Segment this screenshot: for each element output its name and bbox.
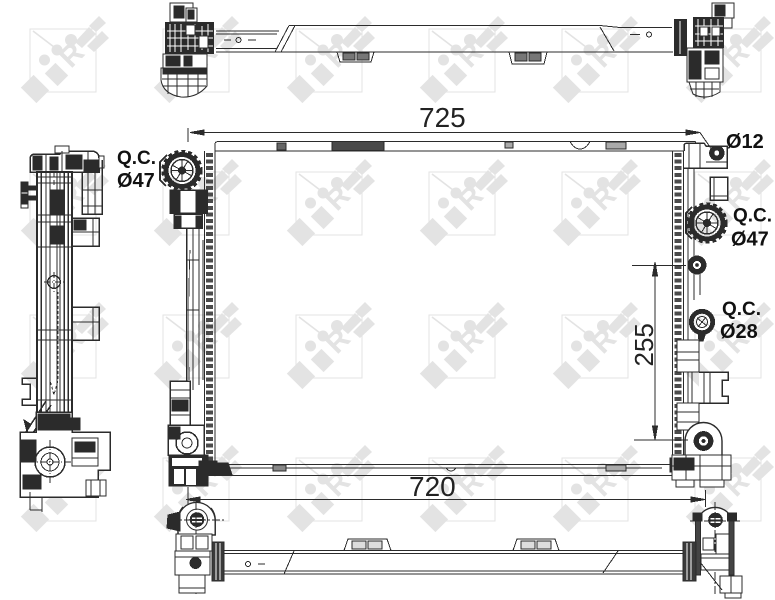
svg-text:Q.C.: Q.C.: [117, 148, 156, 169]
svg-text:Ø28: Ø28: [720, 321, 758, 343]
svg-text:Ø47: Ø47: [117, 170, 155, 192]
svg-text:Ø12: Ø12: [726, 131, 764, 153]
svg-text:Q.C.: Q.C.: [722, 299, 761, 320]
svg-text:720: 720: [409, 471, 456, 502]
svg-text:725: 725: [419, 102, 466, 133]
svg-text:Ø47: Ø47: [731, 229, 769, 251]
svg-text:Q.C.: Q.C.: [733, 206, 772, 227]
svg-text:255: 255: [629, 323, 659, 366]
